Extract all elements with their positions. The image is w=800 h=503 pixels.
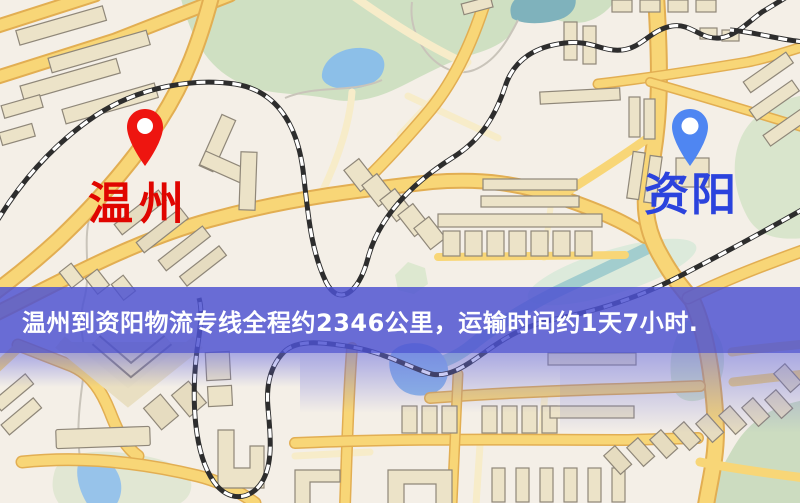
origin-label: 温州 — [88, 181, 190, 226]
origin-pin-hole — [137, 118, 153, 134]
logistics-map-screenshot: 温州到资阳物流专线全程约2346公里，运输时间约1天7小时. 温州 资阳 — [0, 0, 800, 503]
banner-fade-center — [300, 353, 560, 413]
destination-label: 资阳 — [644, 172, 738, 217]
route-info-banner: 温州到资阳物流专线全程约2346公里，运输时间约1天7小时. — [0, 287, 800, 353]
destination-pin[interactable] — [667, 106, 713, 168]
origin-pin-shape — [127, 109, 163, 166]
route-info-text: 温州到资阳物流专线全程约2346公里，运输时间约1天7小时. — [0, 303, 698, 338]
origin-pin[interactable] — [122, 106, 168, 168]
banner-fade-left — [0, 353, 300, 387]
destination-pin-hole — [682, 118, 699, 135]
banner-fade-right — [560, 353, 800, 433]
